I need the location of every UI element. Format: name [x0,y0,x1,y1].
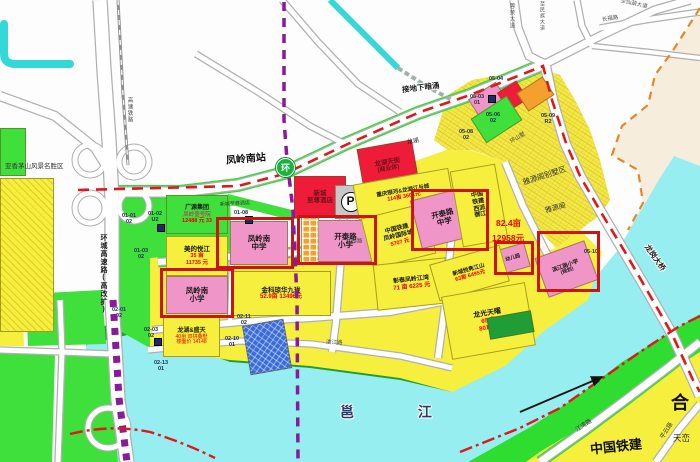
metro-ring-badge: 环 [276,158,295,177]
scenic-area-label: 亚香茅山风景名胜区 [5,164,64,171]
minzu-ave-label: 至民族大道 [539,1,544,31]
station-label: 凤岭南站 [226,153,267,166]
yayuange-label: 雅源阁 [544,202,566,214]
longhu-small-label: 龙湖 [407,138,420,146]
kaitai-rd-label: 开泰路 [346,239,363,246]
huanshanshu-label: 环山墅 [510,132,527,145]
longgang-bridge-label: 龙岗大桥 [643,243,666,272]
price-12958-label: 12958元 [492,234,524,243]
hotel-small-label: 新城至尊酒店 [220,201,250,208]
culvert-label: 接地下暗涌 [402,82,440,94]
changfu-rd-label: 长福路 [602,16,619,24]
planning-map-canvas: 广源集团凤岭壹号院12488 元 33美的悦江35 亩11735 元凤岭南小学凤… [0,0,700,462]
tiejian-bottom-label: 中国铁建 [589,437,642,455]
he-label: 合 [671,394,689,412]
area-82-label: 82.4亩 [496,219,521,228]
hsr-label: 高速铁路 [126,97,132,123]
yongjiang-river-label: 邕 江 [340,405,462,419]
binjiang-rd-label: 滨江路 [326,341,343,347]
jiangwan-rd-label: 江湾路 [575,419,593,434]
tianluan-label: 天峦 [673,434,690,443]
xianhu-ave-label: 至仙葫大道 [620,0,648,11]
rongmo-ave-label: 蓉茉大道 [508,3,514,29]
yayuange-villa-label: 雅源阁别墅区 [522,165,567,186]
ring-expressway-label: 环城高速路(高改扩) [100,234,107,314]
